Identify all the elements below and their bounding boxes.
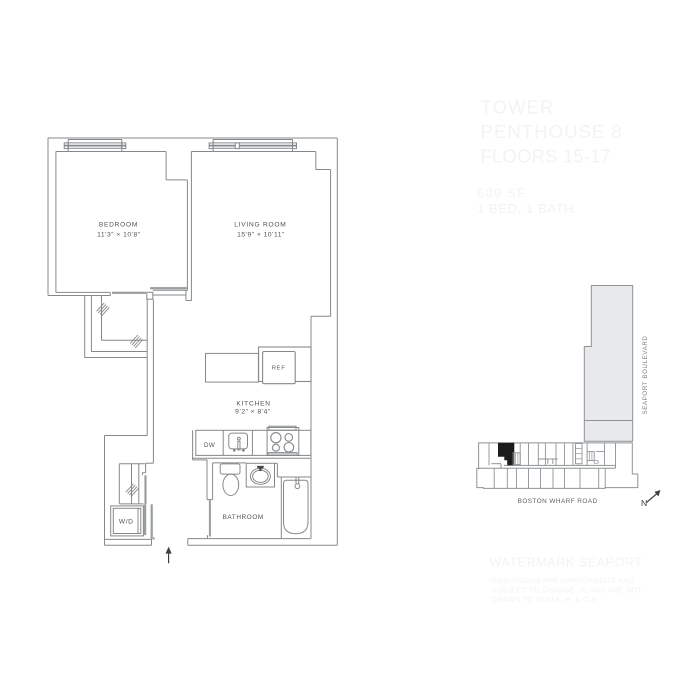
svg-text:15’9” × 10’11”: 15’9” × 10’11” bbox=[237, 231, 285, 238]
svg-text:FLOORS 15-17: FLOORS 15-17 bbox=[481, 145, 611, 166]
svg-text:DRAWN TO SCALE. E. & O.E.: DRAWN TO SCALE. E. & O.E. bbox=[491, 595, 598, 604]
svg-text:REF: REF bbox=[272, 365, 286, 371]
svg-text:11’3” × 10’8”: 11’3” × 10’8” bbox=[97, 231, 140, 238]
svg-text:BATHROOM: BATHROOM bbox=[223, 514, 264, 521]
svg-text:LIVING ROOM: LIVING ROOM bbox=[234, 222, 286, 229]
svg-text:DW: DW bbox=[204, 442, 215, 449]
svg-text:BOSTON WHARF ROAD: BOSTON WHARF ROAD bbox=[518, 498, 598, 505]
svg-text:KITCHEN: KITCHEN bbox=[236, 400, 271, 407]
svg-text:DIMENSIONS ARE APPROXIMATE AND: DIMENSIONS ARE APPROXIMATE AND bbox=[491, 576, 635, 585]
svg-text:BEDROOM: BEDROOM bbox=[99, 222, 138, 229]
svg-text:WATERMARK SEAPORT: WATERMARK SEAPORT bbox=[490, 555, 643, 569]
svg-text:SUBJECT TO CHANGE. PLANS ARE N: SUBJECT TO CHANGE. PLANS ARE NOT bbox=[491, 585, 642, 594]
svg-text:609 SF: 609 SF bbox=[477, 186, 526, 201]
svg-text:N: N bbox=[641, 498, 647, 508]
svg-text:9’2” × 8’4”: 9’2” × 8’4” bbox=[235, 409, 270, 416]
svg-text:W/D: W/D bbox=[119, 519, 134, 526]
svg-text:PENTHOUSE 8: PENTHOUSE 8 bbox=[481, 121, 623, 142]
svg-text:SEAPORT BOULEVARD: SEAPORT BOULEVARD bbox=[642, 336, 649, 415]
svg-text:1 BED, 1 BATH: 1 BED, 1 BATH bbox=[477, 201, 574, 216]
svg-text:TOWER: TOWER bbox=[481, 97, 555, 118]
